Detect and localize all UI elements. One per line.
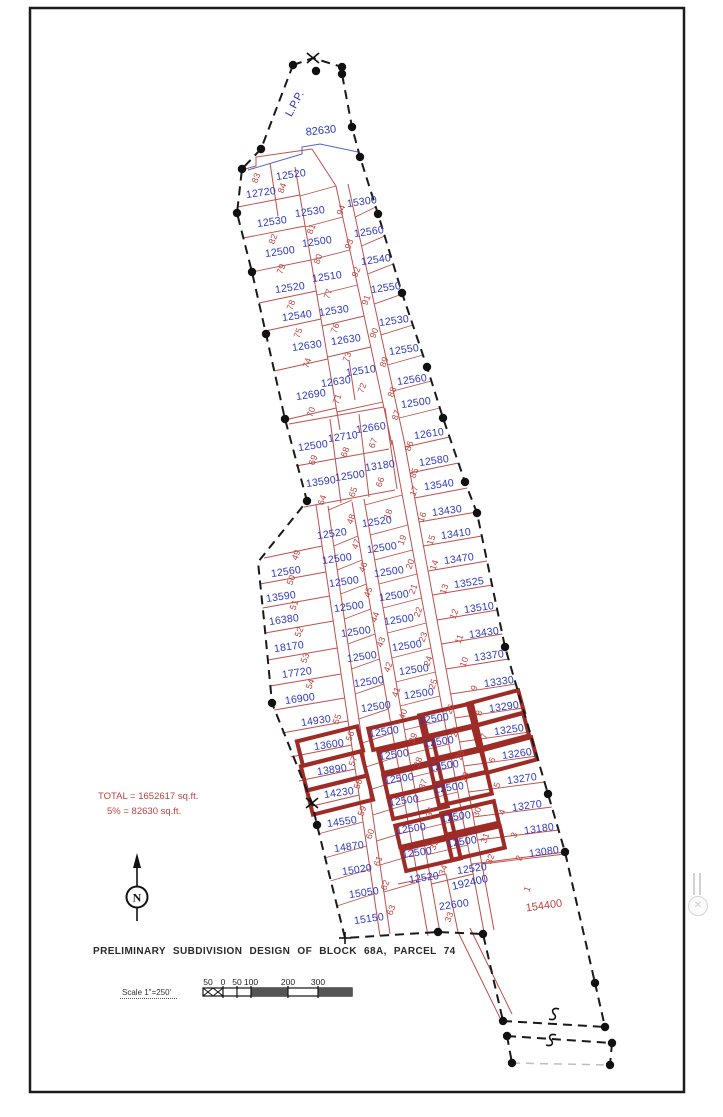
scale-bar-segment — [251, 988, 288, 996]
highlighted-lot-6 — [481, 737, 537, 773]
lot-line — [325, 846, 367, 858]
survey-point-dot — [479, 930, 487, 938]
lot-line — [243, 226, 305, 238]
lot-line — [330, 869, 370, 881]
lot-line — [334, 536, 358, 546]
scale-tick-label: 0 — [221, 977, 226, 987]
lot-line — [359, 709, 388, 719]
lot-line — [328, 347, 371, 357]
lot-line — [274, 359, 328, 371]
broken-image-icon: ✕ — [688, 896, 708, 916]
lot-line — [344, 609, 370, 619]
survey-point-dot — [338, 70, 346, 78]
lot-line — [337, 894, 374, 906]
lot-line — [352, 659, 380, 669]
lot-column-rail — [392, 440, 484, 932]
lot-line — [392, 648, 431, 658]
line-break-symbol — [549, 1008, 559, 1019]
lot-line — [312, 149, 336, 186]
survey-point-dot — [312, 67, 320, 75]
lot-column-rail — [295, 167, 340, 430]
survey-point-dot — [606, 1061, 614, 1069]
area-summary: TOTAL = 1652617 sq.ft. 5% = 82630 sq.ft. — [98, 789, 198, 819]
plat-drawing-page: N 12720125201253012500125201254012630126… — [0, 0, 723, 1117]
survey-point-dot — [268, 699, 276, 707]
survey-point-dot — [289, 61, 297, 69]
lot-line — [396, 672, 435, 682]
survey-point-dot — [398, 289, 406, 297]
survey-point-dot — [356, 153, 364, 161]
survey-point-dot — [262, 330, 270, 338]
lot-line — [330, 419, 341, 503]
lot-line — [381, 325, 413, 335]
lot-line — [270, 163, 278, 216]
five-percent-text: 5% = 82630 sq.ft. — [98, 804, 198, 819]
lot-line — [400, 696, 440, 706]
lot-line — [311, 250, 350, 260]
lot-line — [387, 623, 426, 633]
lot-line — [419, 512, 477, 522]
lot-line — [259, 291, 316, 303]
lot-line — [385, 408, 397, 489]
scale-tick-label: 50 — [203, 977, 212, 987]
lot-line — [432, 585, 492, 595]
lot-line — [285, 408, 336, 420]
boundary-line — [503, 1021, 605, 1027]
lot-line — [399, 408, 440, 418]
lot-line — [348, 634, 375, 644]
highlighted-lot-58 — [307, 775, 373, 814]
lot-line — [264, 546, 322, 558]
lot-line — [473, 807, 552, 817]
lot-line — [393, 381, 431, 391]
survey-point-dot — [508, 1059, 516, 1067]
lot-line — [305, 217, 342, 227]
survey-point-dot — [503, 1032, 511, 1040]
survey-point-dot — [608, 1039, 616, 1047]
survey-point-dot — [257, 145, 265, 153]
lot-line — [374, 294, 402, 304]
lot-line — [238, 195, 300, 207]
lot-line — [270, 674, 341, 686]
drawing-title: PRELIMINARY SUBDIVISION DESIGN OF BLOCK … — [93, 946, 456, 957]
survey-point-dot — [473, 509, 481, 517]
lot-line — [265, 319, 321, 331]
lot-line — [458, 932, 500, 1018]
scale-tick-label: 200 — [281, 977, 295, 987]
lot-line — [377, 831, 410, 841]
lot-line — [365, 495, 402, 505]
lot-line — [375, 550, 413, 560]
lot-line — [482, 854, 565, 864]
survey-point-dot — [348, 123, 356, 131]
survey-point-dot — [439, 414, 447, 422]
lot-line — [318, 822, 363, 834]
lot-line — [370, 525, 408, 535]
boundary-line — [595, 983, 605, 1027]
survey-point-dot — [499, 1017, 507, 1025]
lot-line — [423, 536, 481, 546]
scale-label: Scale 1"=250' — [120, 988, 177, 999]
survey-point-dot — [461, 478, 469, 486]
lot-line — [355, 684, 384, 694]
lot-line — [446, 874, 458, 932]
lot-line — [380, 855, 414, 865]
lot-line — [410, 463, 458, 473]
lot-line — [317, 285, 358, 295]
scale-tick-label: 300 — [311, 977, 325, 987]
lot-line — [405, 437, 449, 447]
lot-line — [441, 634, 502, 644]
survey-point-dot — [248, 268, 256, 276]
total-area-text: TOTAL = 1652617 sq.ft. — [98, 789, 198, 804]
boundary-line-faint — [512, 1063, 610, 1065]
survey-point-dot — [423, 363, 431, 371]
lot-line — [383, 598, 421, 608]
lot-line — [428, 561, 487, 571]
boundary-line — [507, 1036, 612, 1043]
lot-line — [268, 648, 337, 660]
lot-column-rail — [328, 506, 390, 934]
survey-point-dot — [601, 1023, 609, 1031]
survey-point-dot — [591, 979, 599, 987]
lot-line — [349, 360, 355, 400]
lot-line — [322, 316, 364, 326]
lot-column-rail — [364, 499, 440, 933]
scale-tick-label: 100 — [244, 977, 258, 987]
survey-point-dot — [233, 209, 241, 217]
survey-point-dot — [561, 848, 569, 856]
lot-line — [362, 733, 392, 743]
lot-line — [469, 782, 545, 792]
lot-line — [238, 149, 312, 171]
survey-point-dot — [434, 928, 442, 936]
lot-line — [300, 186, 336, 196]
lot-line — [304, 490, 395, 507]
scale-tick-label: 50 — [232, 977, 241, 987]
lot-line — [359, 414, 369, 497]
lot-line — [477, 830, 558, 840]
sheet-border — [30, 8, 684, 1092]
survey-point-dot — [544, 790, 552, 798]
lot-line — [260, 572, 326, 584]
lot-line — [379, 574, 417, 584]
north-arrow-head — [133, 853, 141, 868]
lot-line — [274, 698, 344, 710]
survey-point-dot — [238, 165, 246, 173]
lot-line — [362, 236, 385, 246]
north-label: N — [133, 891, 142, 905]
lot-line — [388, 355, 423, 365]
lot-line — [368, 264, 394, 274]
lot-line — [437, 610, 497, 620]
survey-point-dot — [313, 821, 321, 829]
survey-point-dot — [303, 497, 311, 505]
lot-line — [263, 596, 330, 608]
scale-bar-segment — [318, 988, 352, 996]
survey-point-dot — [374, 210, 382, 218]
lot-line — [252, 260, 311, 272]
lot-line — [446, 659, 508, 669]
lot-line — [337, 560, 362, 570]
lot-line — [296, 449, 389, 466]
lot-line — [415, 488, 468, 498]
lot-line — [341, 584, 367, 594]
lot-column-rail — [316, 505, 380, 936]
survey-point-dot — [281, 415, 289, 423]
lot-line — [355, 207, 376, 217]
survey-point-dot — [501, 643, 509, 651]
lot-line — [265, 621, 333, 633]
lot-line — [337, 402, 383, 412]
